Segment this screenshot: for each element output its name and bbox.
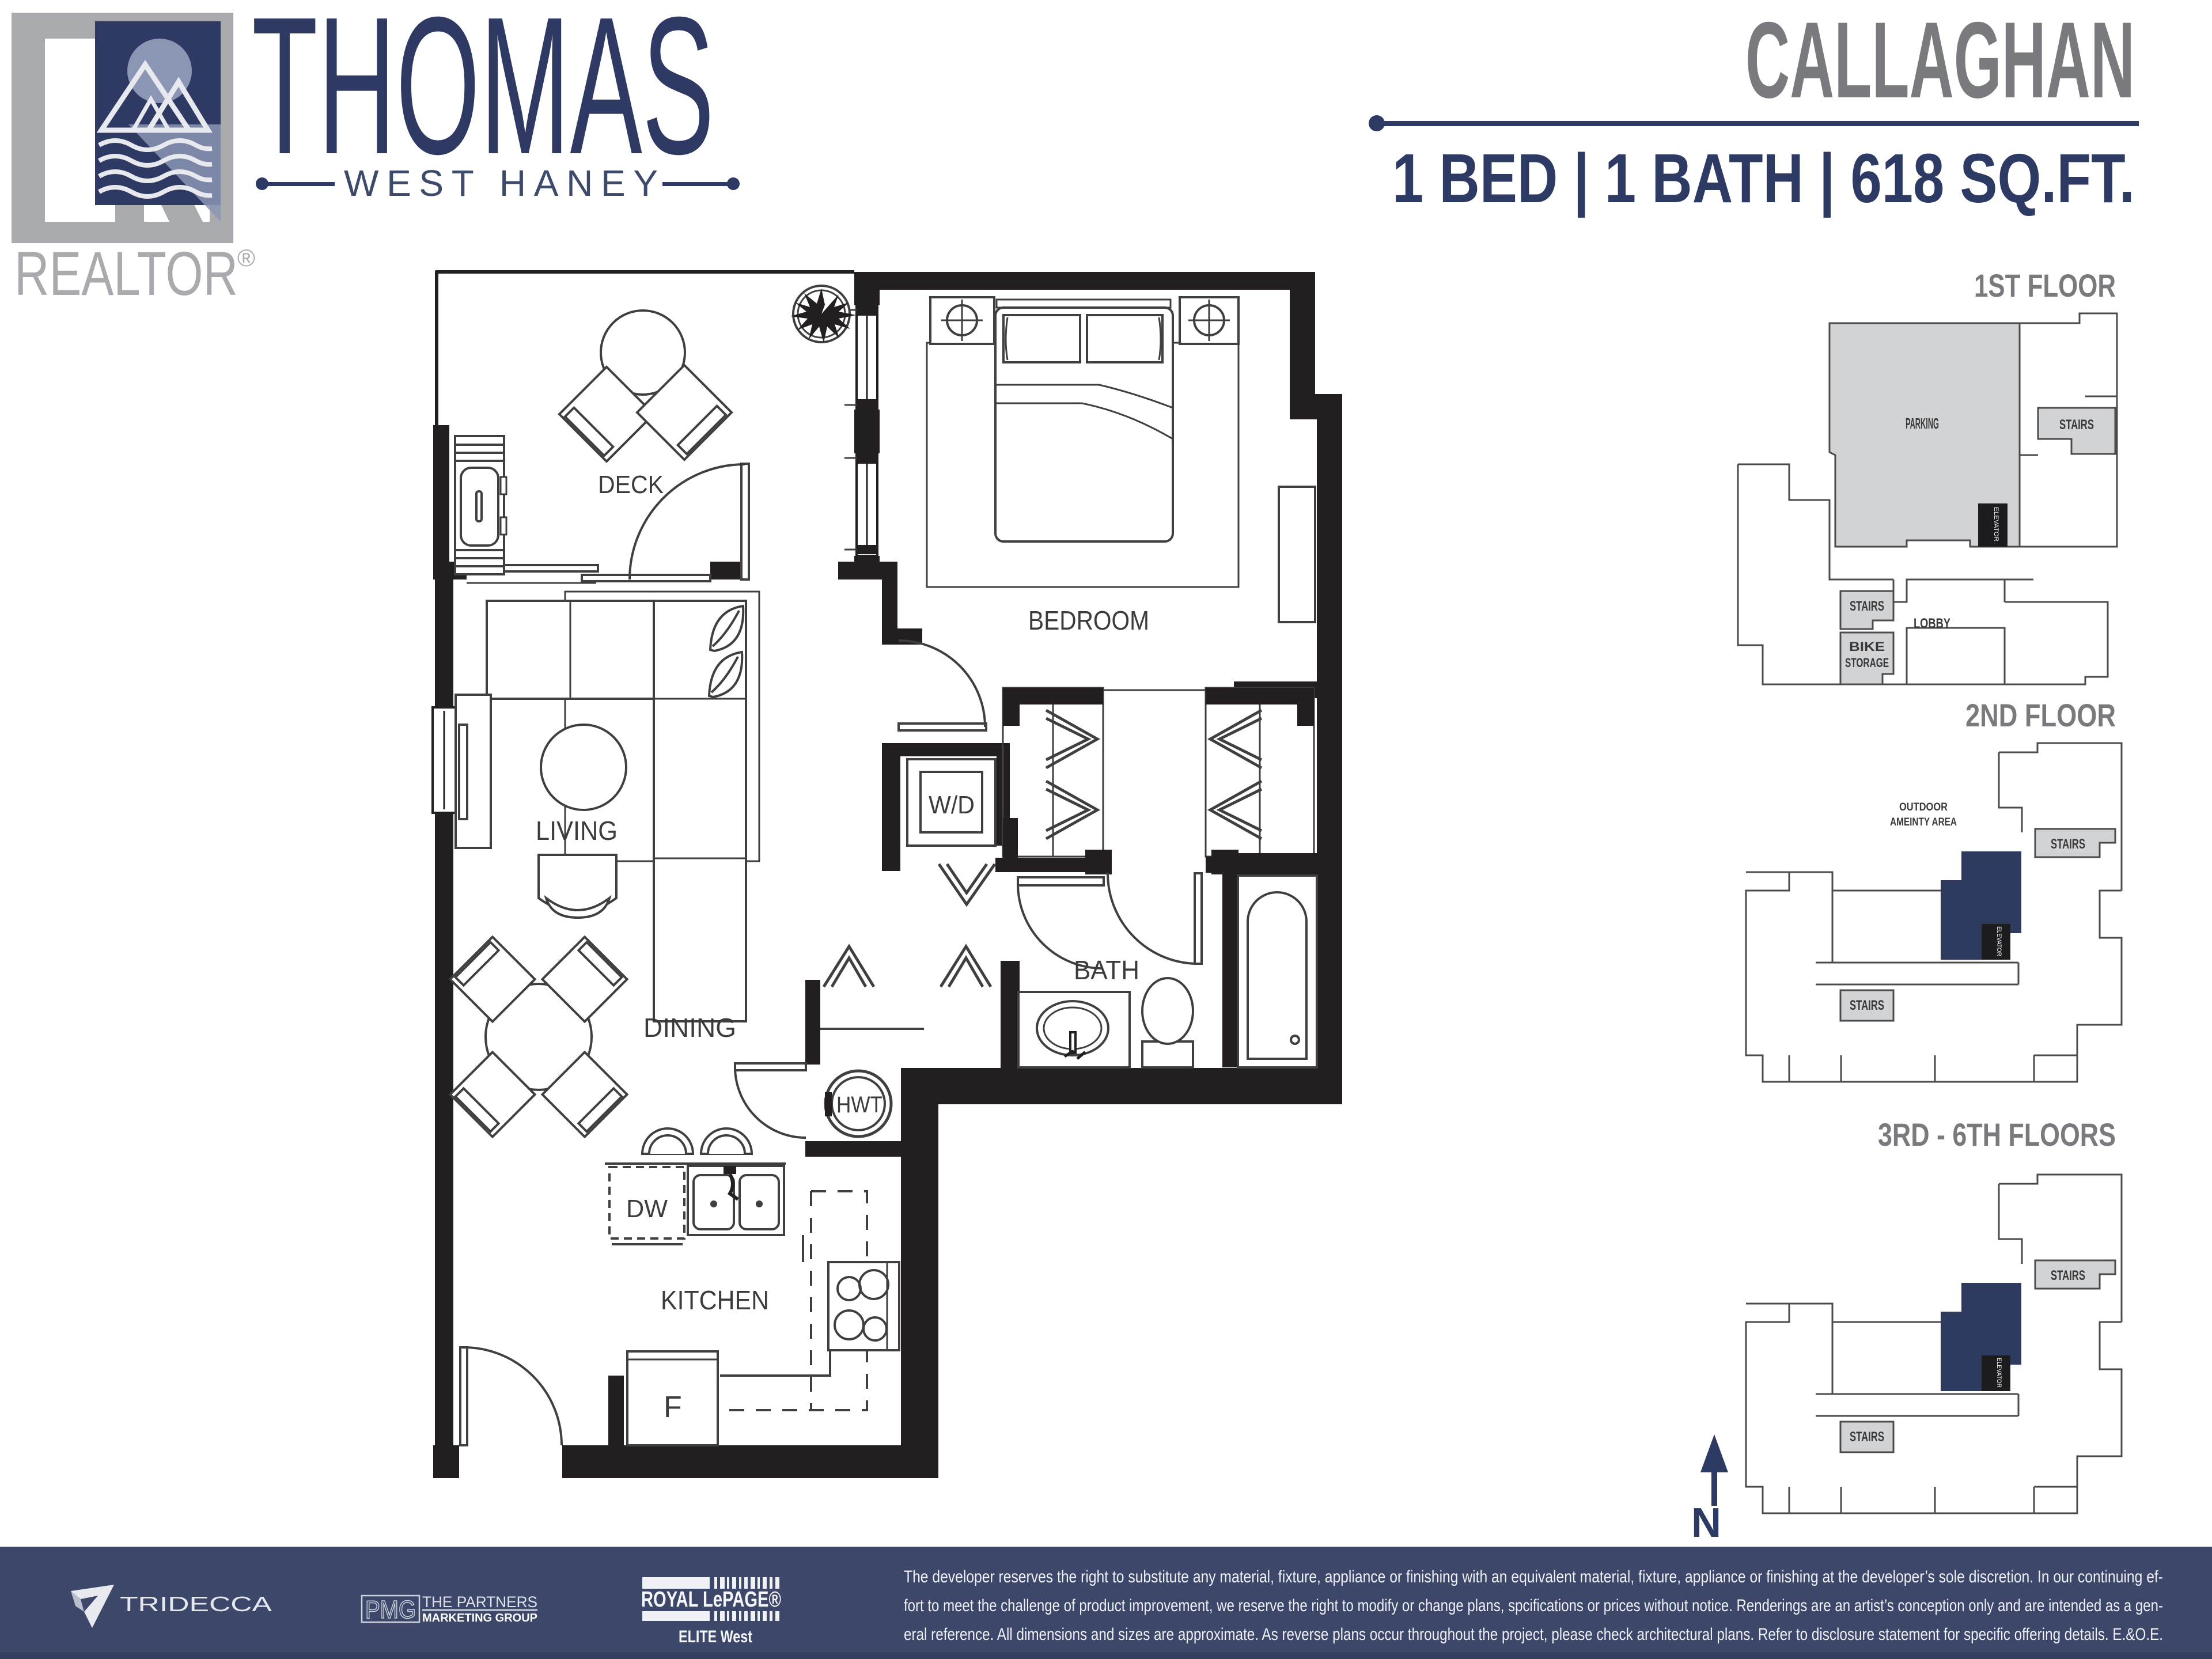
svg-text:1ST FLOOR: 1ST FLOOR bbox=[1974, 267, 2116, 304]
svg-text:The developer reserves the rig: The developer reserves the right to subs… bbox=[904, 1567, 2163, 1586]
svg-text:eral reference. All dimensions: eral reference. All dimensions and sizes… bbox=[904, 1625, 2163, 1644]
svg-text:CALLAGHAN: CALLAGHAN bbox=[1745, 0, 2135, 120]
svg-text:AMEINTY AREA: AMEINTY AREA bbox=[1890, 816, 1957, 828]
svg-text:HWT: HWT bbox=[836, 1092, 882, 1118]
svg-text:TRIDECCA: TRIDECCA bbox=[120, 1592, 272, 1616]
svg-text:3RD - 6TH FLOORS: 3RD - 6TH FLOORS bbox=[1878, 1116, 2116, 1153]
svg-text:BIKE: BIKE bbox=[1849, 639, 1885, 654]
svg-text:ROYAL LePAGE®: ROYAL LePAGE® bbox=[641, 1588, 781, 1612]
svg-text:PARKING: PARKING bbox=[1906, 415, 1939, 432]
svg-text:®: ® bbox=[237, 244, 255, 271]
svg-text:N: N bbox=[1691, 1500, 1721, 1546]
svg-text:STAIRS: STAIRS bbox=[1850, 599, 1884, 614]
svg-text:2ND FLOOR: 2ND FLOOR bbox=[1965, 697, 2116, 733]
svg-text:F: F bbox=[664, 1391, 682, 1424]
svg-text:OUTDOOR: OUTDOOR bbox=[1899, 801, 1948, 813]
svg-text:ELEVATOR: ELEVATOR bbox=[1993, 507, 1999, 541]
svg-text:LOBBY: LOBBY bbox=[1914, 616, 1950, 631]
svg-text:LIVING: LIVING bbox=[536, 816, 618, 846]
svg-text:fort to meet the challenge of: fort to meet the challenge of product im… bbox=[904, 1596, 2163, 1615]
svg-text:STORAGE: STORAGE bbox=[1845, 656, 1889, 670]
svg-text:DECK: DECK bbox=[598, 471, 664, 499]
svg-text:MARKETING GROUP: MARKETING GROUP bbox=[422, 1612, 537, 1624]
svg-text:PMG: PMG bbox=[365, 1596, 416, 1624]
svg-text:REALTOR: REALTOR bbox=[14, 238, 238, 308]
svg-text:STAIRS: STAIRS bbox=[2051, 836, 2085, 852]
svg-text:STAIRS: STAIRS bbox=[1850, 998, 1884, 1013]
svg-text:KITCHEN: KITCHEN bbox=[661, 1285, 769, 1315]
svg-text:DW: DW bbox=[626, 1195, 668, 1223]
svg-text:ELEVATOR: ELEVATOR bbox=[1995, 926, 2002, 956]
svg-text:W/D: W/D bbox=[929, 791, 975, 819]
svg-text:STAIRS: STAIRS bbox=[2059, 417, 2094, 433]
svg-text:WEST HANEY: WEST HANEY bbox=[344, 162, 658, 204]
svg-text:THE PARTNERS: THE PARTNERS bbox=[422, 1593, 537, 1611]
svg-text:BEDROOM: BEDROOM bbox=[1028, 605, 1149, 635]
svg-text:ELITE West: ELITE West bbox=[679, 1627, 752, 1646]
svg-text:STAIRS: STAIRS bbox=[1850, 1429, 1884, 1445]
svg-text:1 BED | 1 BATH | 618 SQ.FT.: 1 BED | 1 BATH | 618 SQ.FT. bbox=[1392, 139, 2135, 218]
svg-text:ELEVATOR: ELEVATOR bbox=[1995, 1358, 2002, 1388]
svg-text:DINING: DINING bbox=[643, 1013, 736, 1043]
svg-text:STAIRS: STAIRS bbox=[2051, 1268, 2085, 1283]
svg-text:BATH: BATH bbox=[1074, 955, 1139, 985]
